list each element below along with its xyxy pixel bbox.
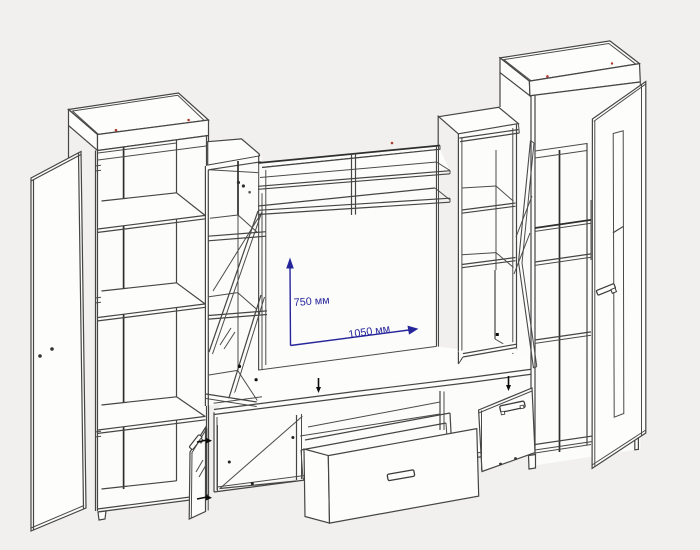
- svg-text:750 мм: 750 мм: [293, 295, 330, 309]
